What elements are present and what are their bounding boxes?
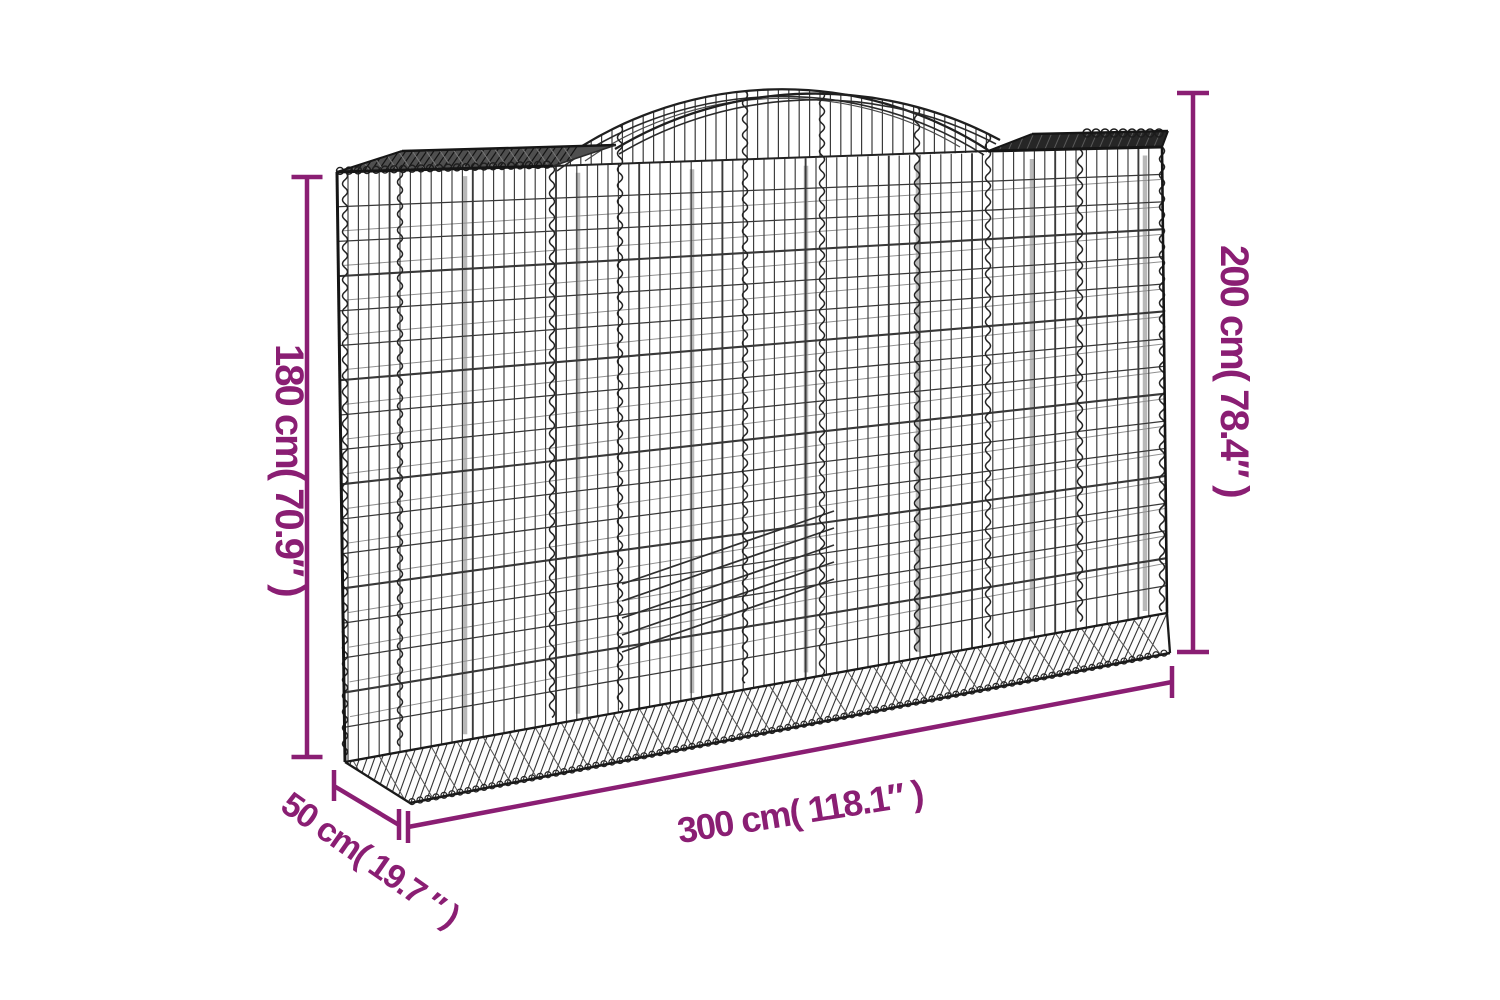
diagram-canvas: 180 cm( 70.9″ ) 200 cm( 78.4″ ) 300 cm( … (0, 0, 1500, 1000)
height-left-label: 180 cm( 70.9″ ) (263, 180, 311, 760)
floor-panel (330, 611, 1170, 821)
height-right-dimension (1177, 93, 1209, 652)
gabion-wireframe (0, 0, 1500, 1000)
height-right-label: 200 cm( 78.4″ ) (1208, 90, 1256, 652)
top-lid-strips (330, 128, 1180, 180)
